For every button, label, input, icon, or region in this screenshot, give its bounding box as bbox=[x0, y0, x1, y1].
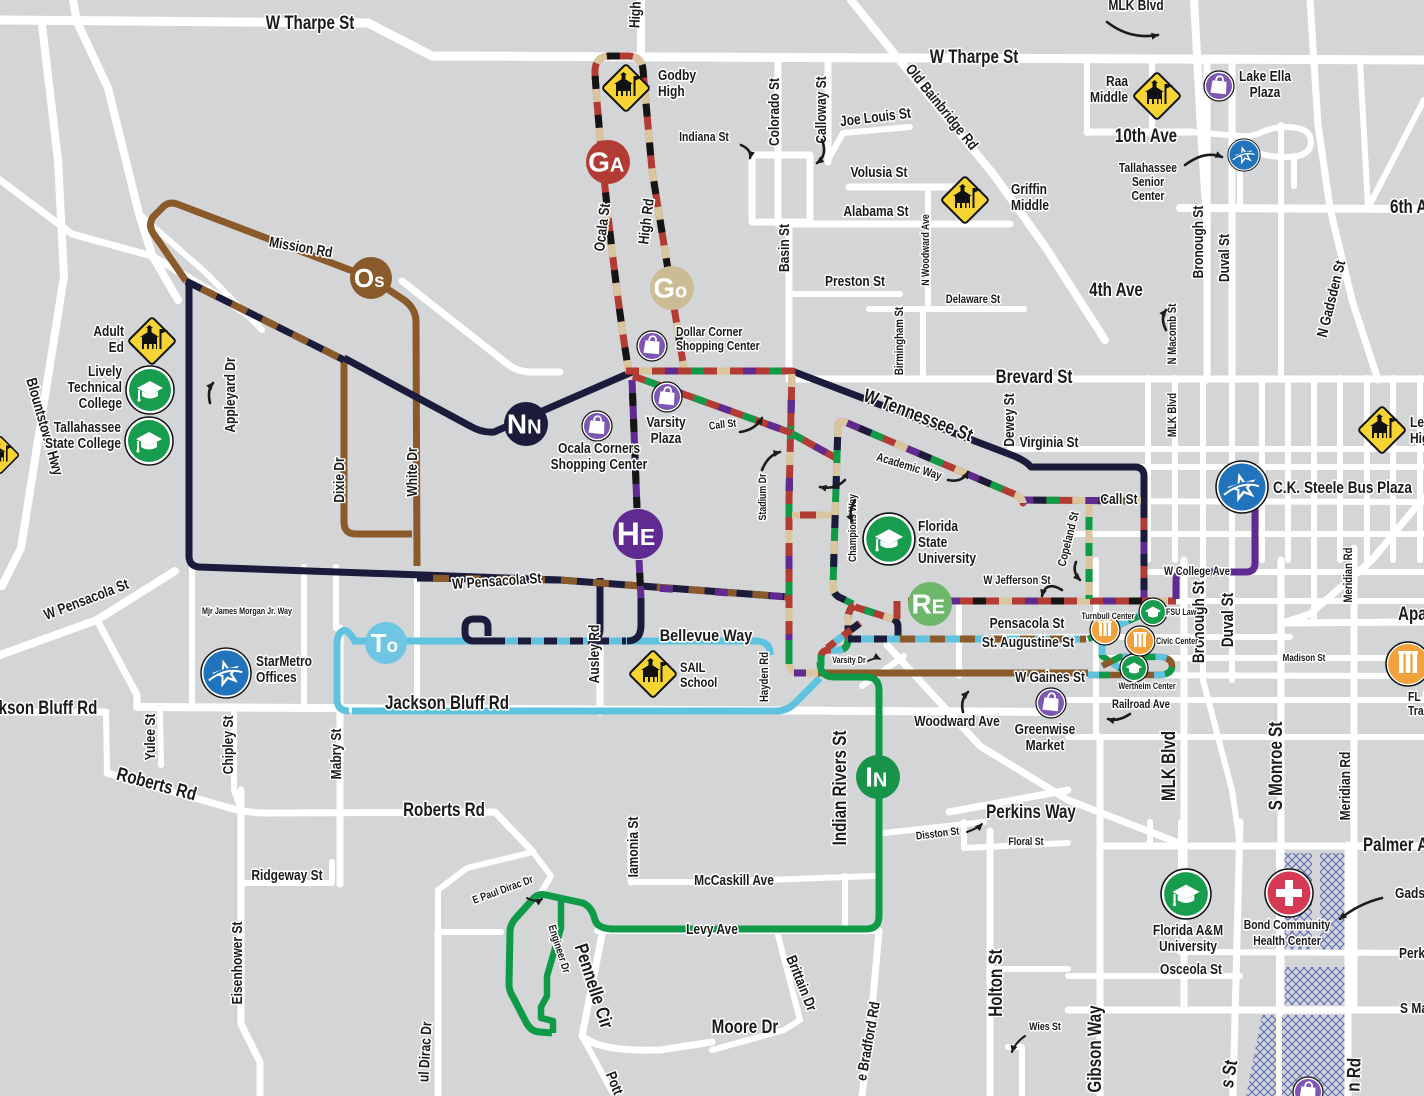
svg-text:Raa: Raa bbox=[1106, 73, 1128, 90]
svg-text:University: University bbox=[1159, 938, 1217, 955]
svg-text:MLK Blvd: MLK Blvd bbox=[1157, 731, 1179, 801]
svg-text:Yulee St: Yulee St bbox=[142, 713, 159, 760]
svg-text:Griffin: Griffin bbox=[1011, 181, 1047, 198]
svg-text:Duval St: Duval St bbox=[1219, 593, 1238, 647]
svg-text:Gadsder: Gadsder bbox=[1395, 885, 1424, 902]
svg-text:State: State bbox=[918, 534, 948, 551]
svg-text:Dixie Dr: Dixie Dr bbox=[331, 457, 348, 503]
svg-text:Center: Center bbox=[1132, 189, 1165, 203]
svg-text:Appleyard Dr: Appleyard Dr bbox=[222, 357, 239, 433]
svg-text:Woodward Ave: Woodward Ave bbox=[914, 713, 1000, 730]
svg-text:4th Ave: 4th Ave bbox=[1089, 278, 1143, 300]
svg-text:Leo: Leo bbox=[1410, 414, 1424, 431]
svg-text:Greenwise: Greenwise bbox=[1015, 721, 1076, 738]
svg-text:FSU Law: FSU Law bbox=[1166, 607, 1197, 617]
svg-text:Hayden Rd: Hayden Rd bbox=[758, 652, 771, 702]
svg-text:Technical: Technical bbox=[68, 379, 122, 396]
svg-text:Osceola St: Osceola St bbox=[1160, 961, 1222, 978]
svg-text:W Tharpe St: W Tharpe St bbox=[266, 11, 355, 33]
svg-text:MLK Blvd: MLK Blvd bbox=[1108, 0, 1163, 13]
svg-text:W Tharpe St: W Tharpe St bbox=[930, 45, 1019, 67]
svg-text:Jackson Bluff Rd: Jackson Bluff Rd bbox=[385, 691, 509, 713]
svg-text:FL Dep: FL Dep bbox=[1408, 690, 1424, 704]
svg-text:Middle: Middle bbox=[1090, 89, 1128, 106]
svg-text:University: University bbox=[918, 550, 976, 567]
svg-text:Florida A&M: Florida A&M bbox=[1153, 922, 1223, 939]
svg-text:Gibson Way: Gibson Way bbox=[1083, 1005, 1105, 1093]
svg-text:Bronough St: Bronough St bbox=[1190, 581, 1209, 663]
svg-text:Florida: Florida bbox=[918, 518, 958, 535]
svg-text:Bellevue Way: Bellevue Way bbox=[660, 627, 753, 645]
svg-text:W Jefferson St: W Jefferson St bbox=[983, 574, 1051, 587]
svg-text:Indiana St: Indiana St bbox=[679, 130, 729, 144]
svg-text:Railroad Ave: Railroad Ave bbox=[1112, 698, 1170, 711]
svg-text:High: High bbox=[626, 1, 644, 28]
svg-text:C.K. Steele Bus Plaza: C.K. Steele Bus Plaza bbox=[1273, 479, 1412, 498]
svg-text:Middle: Middle bbox=[1011, 197, 1049, 214]
svg-text:Calloway St: Calloway St bbox=[813, 76, 830, 144]
svg-text:Tallahassee: Tallahassee bbox=[1119, 161, 1178, 175]
svg-text:Ausley Rd: Ausley Rd bbox=[586, 625, 603, 684]
svg-text:Volusia St: Volusia St bbox=[850, 164, 908, 181]
svg-text:Palmer A: Palmer A bbox=[1363, 833, 1424, 855]
svg-text:N Macomb St: N Macomb St bbox=[1166, 303, 1179, 364]
svg-text:Offices: Offices bbox=[256, 669, 297, 686]
svg-text:Plaza: Plaza bbox=[651, 430, 682, 447]
svg-text:Delaware St: Delaware St bbox=[946, 293, 1001, 306]
svg-text:W Gaines St: W Gaines St bbox=[1015, 669, 1085, 686]
svg-text:Duval St: Duval St bbox=[1216, 234, 1233, 282]
svg-text:Pensacola St: Pensacola St bbox=[990, 615, 1065, 632]
svg-text:High: High bbox=[658, 83, 685, 100]
svg-text:Alabama St: Alabama St bbox=[843, 203, 909, 220]
svg-text:Meridian Rd: Meridian Rd bbox=[1337, 752, 1354, 821]
svg-text:kson Bluff Rd: kson Bluff Rd bbox=[0, 696, 97, 718]
svg-text:Bronough St: Bronough St bbox=[1190, 205, 1207, 278]
svg-text:Shopping Center: Shopping Center bbox=[551, 456, 648, 473]
svg-text:Brevard St: Brevard St bbox=[996, 365, 1073, 387]
svg-text:Wertheim Center: Wertheim Center bbox=[1118, 681, 1176, 691]
svg-text:Eisenhower St: Eisenhower St bbox=[229, 921, 246, 1004]
svg-text:Preston St: Preston St bbox=[825, 273, 885, 290]
svg-text:White Dr: White Dr bbox=[404, 447, 421, 497]
svg-text:Varsity Dr: Varsity Dr bbox=[832, 655, 866, 665]
svg-text:10th Ave: 10th Ave bbox=[1115, 124, 1177, 146]
svg-text:Apa: Apa bbox=[1398, 602, 1424, 624]
svg-text:Holton St: Holton St bbox=[984, 949, 1006, 1017]
svg-text:6th A: 6th A bbox=[1390, 195, 1424, 217]
svg-text:Godby: Godby bbox=[658, 67, 696, 84]
svg-text:Mjr James Morgan Jr. Way: Mjr James Morgan Jr. Way bbox=[202, 606, 292, 616]
svg-text:SAIL: SAIL bbox=[680, 660, 706, 675]
svg-text:StarMetro: StarMetro bbox=[256, 653, 312, 670]
svg-text:Perkins Way: Perkins Way bbox=[986, 800, 1076, 822]
svg-text:Virginia St: Virginia St bbox=[1019, 434, 1079, 451]
svg-text:Indian Rivers St: Indian Rivers St bbox=[828, 730, 850, 845]
svg-text:State College: State College bbox=[45, 435, 121, 452]
svg-text:Colorado St: Colorado St bbox=[766, 78, 783, 146]
svg-text:Ridgeway St: Ridgeway St bbox=[251, 867, 323, 884]
svg-text:College: College bbox=[79, 395, 123, 412]
svg-text:Perkins: Perkins bbox=[1399, 945, 1424, 962]
svg-text:Adult: Adult bbox=[93, 323, 124, 340]
svg-text:Moore Dr: Moore Dr bbox=[712, 1015, 779, 1037]
svg-text:N Woodward Ave: N Woodward Ave bbox=[920, 214, 932, 286]
svg-text:Senior: Senior bbox=[1132, 175, 1165, 189]
svg-text:Market: Market bbox=[1026, 737, 1065, 754]
svg-text:Lively: Lively bbox=[88, 363, 122, 380]
svg-text:S Ma: S Ma bbox=[1400, 1000, 1424, 1017]
svg-text:Wies St: Wies St bbox=[1029, 1021, 1061, 1033]
svg-text:Transp: Transp bbox=[1408, 704, 1424, 718]
svg-text:Roberts Rd: Roberts Rd bbox=[403, 798, 485, 820]
svg-text:Meridian Rd: Meridian Rd bbox=[1342, 548, 1355, 603]
svg-text:School: School bbox=[680, 675, 717, 690]
svg-text:Iamonia St: Iamonia St bbox=[625, 816, 642, 877]
svg-text:Hig: Hig bbox=[1410, 430, 1424, 447]
svg-text:Lake Ella: Lake Ella bbox=[1239, 68, 1291, 85]
svg-text:Shopping Center: Shopping Center bbox=[676, 339, 760, 353]
svg-text:Dewey St: Dewey St bbox=[1001, 393, 1018, 447]
svg-text:Birmingham St: Birmingham St bbox=[893, 307, 906, 376]
svg-text:Tallahassee: Tallahassee bbox=[54, 419, 122, 436]
svg-text:Stadium Dr: Stadium Dr bbox=[757, 473, 769, 520]
svg-text:Chipley St: Chipley St bbox=[220, 715, 237, 774]
svg-text:Plaza: Plaza bbox=[1250, 84, 1281, 101]
svg-text:Turnbull Center: Turnbull Center bbox=[1082, 611, 1136, 621]
svg-text:Mabry St: Mabry St bbox=[328, 728, 345, 779]
svg-text:W College Ave: W College Ave bbox=[1164, 565, 1230, 578]
svg-text:n Rd: n Rd bbox=[1342, 1058, 1365, 1092]
svg-text:ul Dirac Dr: ul Dirac Dr bbox=[415, 1020, 435, 1082]
svg-text:Dollar Corner: Dollar Corner bbox=[676, 325, 743, 339]
svg-text:Ocala Corners: Ocala Corners bbox=[558, 440, 640, 457]
svg-text:Basin St: Basin St bbox=[776, 224, 793, 272]
svg-text:McCaskill Ave: McCaskill Ave bbox=[694, 872, 774, 889]
svg-text:MLK Blvd: MLK Blvd bbox=[1166, 393, 1179, 437]
svg-text:S Monroe St: S Monroe St bbox=[1264, 721, 1286, 810]
svg-text:Levy Ave: Levy Ave bbox=[686, 921, 738, 938]
svg-text:Health Center: Health Center bbox=[1253, 934, 1321, 948]
svg-text:Bond Community: Bond Community bbox=[1244, 918, 1331, 932]
svg-text:Floral St: Floral St bbox=[1008, 836, 1044, 848]
svg-text:St. Augustine St: St. Augustine St bbox=[982, 634, 1075, 651]
svg-text:Varsity: Varsity bbox=[646, 414, 686, 431]
svg-text:Madison St: Madison St bbox=[1283, 652, 1326, 663]
svg-text:Ed: Ed bbox=[109, 339, 124, 356]
svg-text:Civic Center: Civic Center bbox=[1156, 636, 1199, 646]
svg-text:Call St: Call St bbox=[1100, 491, 1138, 508]
